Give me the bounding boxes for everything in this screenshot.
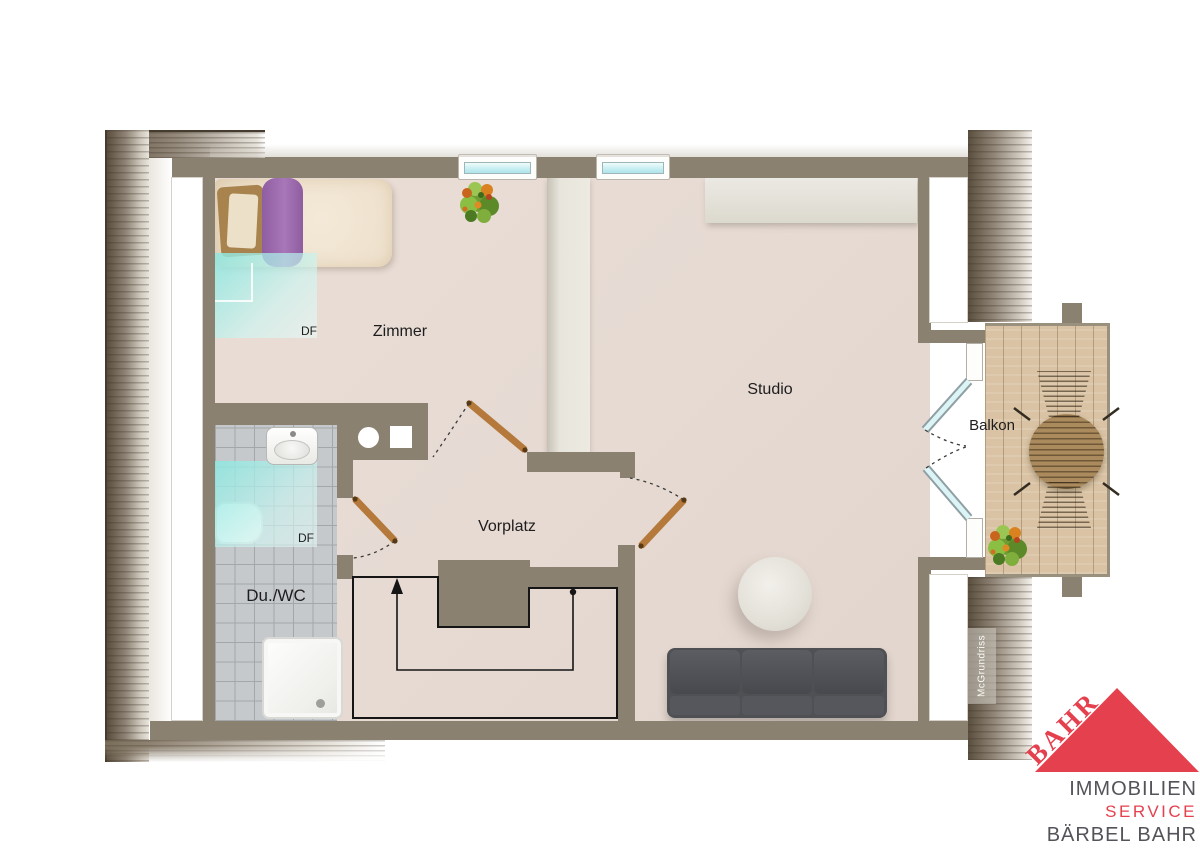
sofa [667,648,887,718]
coffee-table [738,557,812,631]
utility-circle [358,427,379,448]
partition-chimney [547,178,590,452]
balcony-door-frame-bottom [966,518,983,558]
sofa-seat [670,696,740,715]
sink [266,427,318,465]
skylight-frame-line [215,300,253,302]
room-label-balkon: Balkon [957,417,1027,434]
sink-bowl [274,440,310,460]
sofa-seat [742,696,812,715]
roof-eave-line [210,144,970,157]
balcony-door-arc-bottom [926,447,966,468]
sink-tap [290,431,296,437]
roof-hatch-right-top [968,130,1032,322]
room-label-studio: Studio [728,381,812,399]
room-label-vorplatz: Vorplatz [459,518,555,536]
knee-wall-left-shade [148,157,172,721]
logo-text: IMMOBILIEN SERVICE BÄRBEL BAHR [900,777,1197,847]
room-label-du-wc: Du./WC [233,586,319,606]
skylight-frame-line [251,263,253,302]
roof-window-2 [596,154,670,180]
wall-studio-door-lower [618,545,635,570]
balcony-door-leaf-bottom-glass [926,468,969,518]
wall-vorplatz-top [527,452,635,472]
roof-hatch-bottom [105,740,385,762]
sofa-cushion [742,650,812,694]
balcony-door-frame-top [966,343,983,381]
wall-balcony-top [918,330,985,343]
wall-bath-right-upper [337,425,353,498]
window-glass [602,162,664,174]
wall-stair-band [529,567,635,588]
shower-tray [262,637,343,719]
wall-stair-right [618,588,635,721]
logo: BAHR IMMOBILIEN SERVICE BÄRBEL BAHR [900,680,1200,848]
wall-bottom [150,721,985,740]
plant [456,178,502,226]
plant-icon [456,178,502,226]
window-glass [464,162,531,174]
sofa-cushion [814,650,884,694]
logo-line-service: SERVICE [900,801,1197,823]
skylight-label-bath: DF [291,531,321,545]
roof-hatch-left [105,130,149,762]
wall-top [150,157,985,178]
plant [984,521,1030,569]
balcony-post-top [1062,303,1082,323]
balcony-door-leaf-bottom-edge [926,468,969,518]
balcony-post-bottom [1062,577,1082,597]
wall-left [203,157,215,741]
logo-line-immobilien: IMMOBILIEN [900,777,1197,801]
wardrobe [705,178,917,223]
skylight-label-zimmer: DF [294,324,324,338]
knee-wall-window-left [171,177,203,721]
wall-stair-notch [438,560,530,627]
floor-plan: DF DF [0,0,1200,848]
knee-wall-window-right-top [929,177,968,323]
sofa-cushion [670,650,740,694]
wall-bath-right-lower [337,555,353,579]
shower-drain [316,699,325,708]
sofa-seat [814,696,884,715]
wall-vorplatz-corner [620,452,635,478]
balcony-table [1029,414,1104,489]
plant-icon [984,521,1030,569]
room-label-zimmer: Zimmer [355,323,445,341]
bed-headboard-pillow [227,193,259,248]
wall-utility-block [340,403,428,460]
roof-window-1 [458,154,537,180]
utility-square [390,426,412,448]
logo-line-baerbel-bahr: BÄRBEL BAHR [900,823,1197,847]
